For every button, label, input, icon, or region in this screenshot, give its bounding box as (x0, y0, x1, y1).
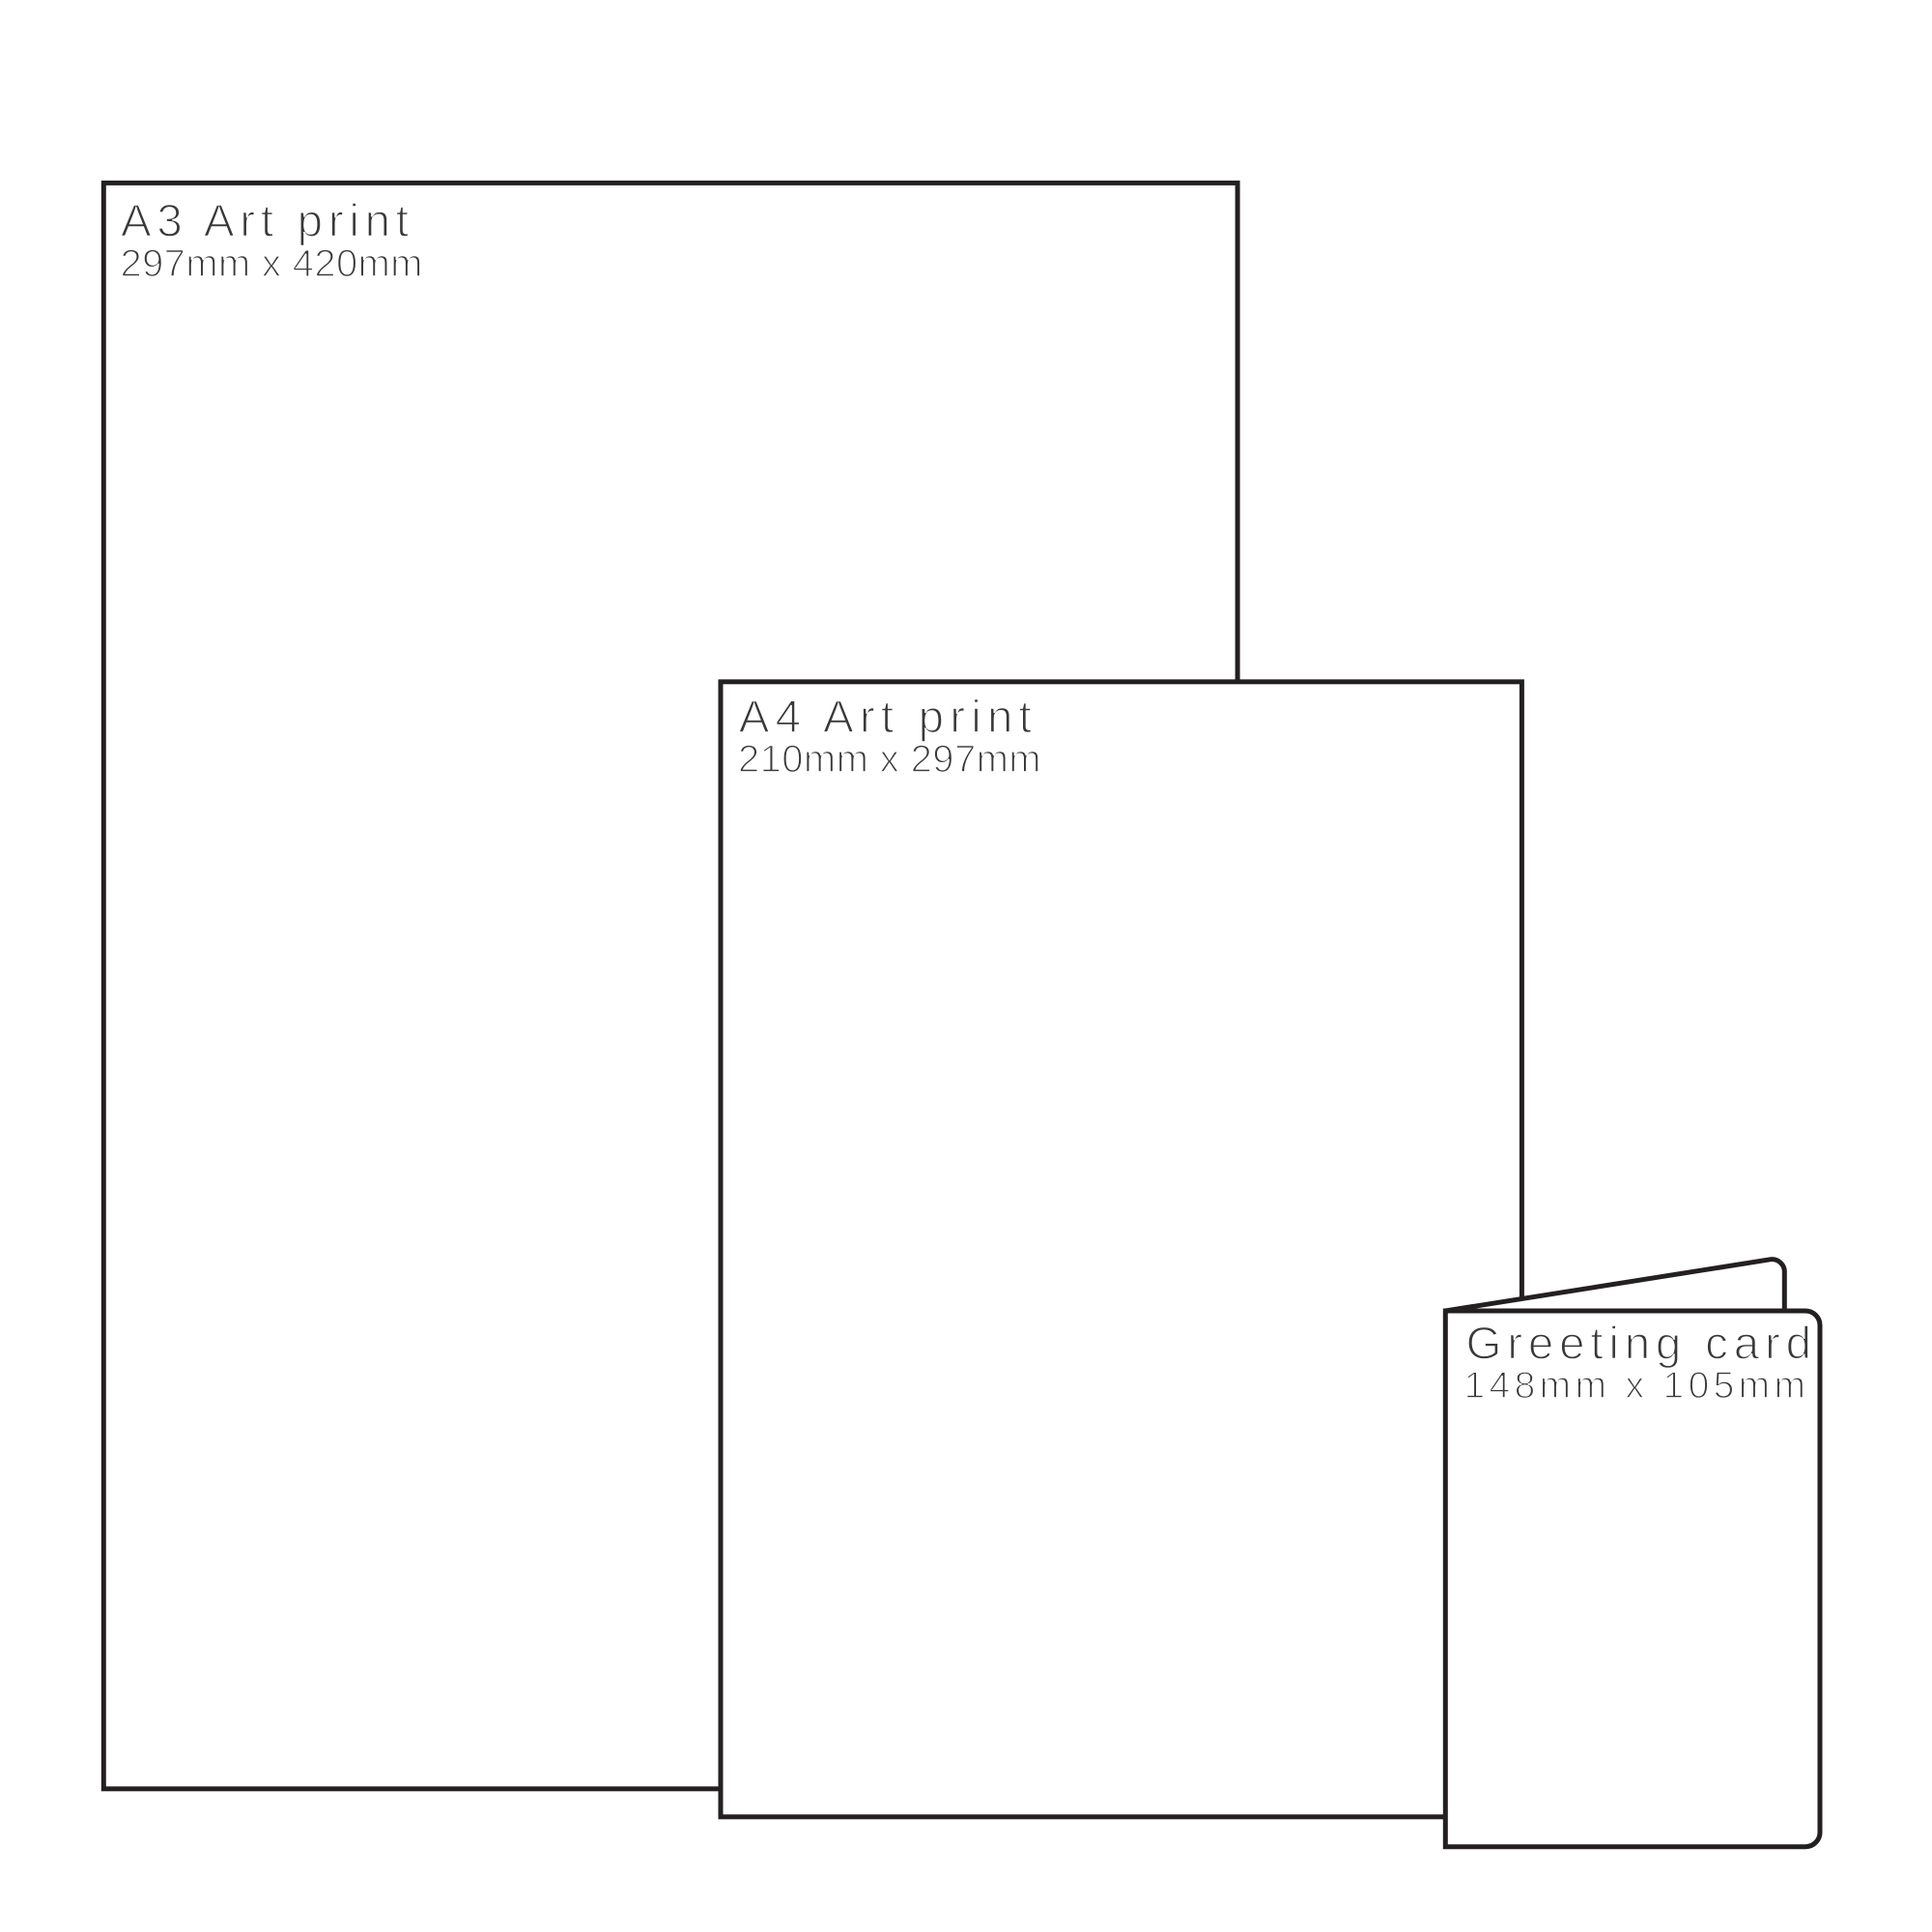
svg-text:210mm x 297mm: 210mm x 297mm (738, 738, 1041, 781)
svg-text:A4 Art print: A4 Art print (739, 692, 1032, 743)
svg-text:A3 Art print: A3 Art print (121, 196, 409, 247)
svg-text:297mm x 420mm: 297mm x 420mm (121, 242, 423, 285)
svg-text:148mm x 105mm: 148mm x 105mm (1464, 1365, 1806, 1406)
